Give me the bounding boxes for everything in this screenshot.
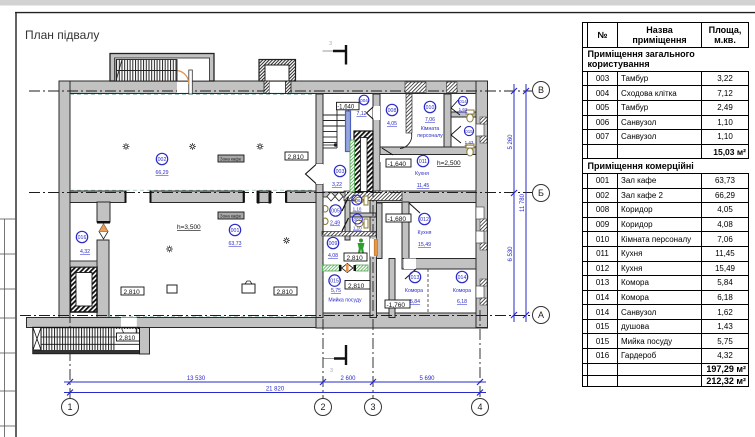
svg-text:001: 001 <box>231 228 240 234</box>
svg-text:-1,680: -1,680 <box>388 216 407 223</box>
svg-text:5,75: 5,75 <box>331 288 341 294</box>
svg-text:2,810: 2,810 <box>119 335 136 342</box>
svg-text:3: 3 <box>330 368 333 374</box>
svg-text:007: 007 <box>354 217 362 222</box>
svg-text:2 600: 2 600 <box>340 376 356 382</box>
svg-text:015: 015 <box>330 279 339 285</box>
svg-text:4,08: 4,08 <box>328 253 338 259</box>
svg-text:002: 002 <box>158 157 167 163</box>
svg-text:013: 013 <box>411 275 420 281</box>
svg-text:5 260: 5 260 <box>508 134 514 150</box>
svg-text:Мийка посуду: Мийка посуду <box>328 297 362 304</box>
svg-text:h=3,500: h=3,500 <box>177 224 201 231</box>
svg-text:006: 006 <box>353 198 361 203</box>
svg-text:2,810: 2,810 <box>288 154 305 161</box>
svg-text:Б: Б <box>538 188 544 198</box>
svg-text:3: 3 <box>329 41 332 47</box>
svg-text:11 780: 11 780 <box>520 193 526 212</box>
svg-text:h=2,500: h=2,500 <box>437 160 461 167</box>
svg-text:В: В <box>538 85 544 95</box>
svg-text:Зона кафе: Зона кафе <box>220 213 242 218</box>
svg-text:А: А <box>538 310 544 320</box>
svg-text:6 530: 6 530 <box>508 246 514 262</box>
svg-text:015: 015 <box>465 129 473 134</box>
svg-text:План підвалу: План підвалу <box>25 28 99 42</box>
svg-text:Зона кафе: Зона кафе <box>220 156 242 161</box>
svg-text:005: 005 <box>331 209 340 215</box>
svg-text:012: 012 <box>420 217 429 223</box>
svg-text:4,05: 4,05 <box>387 121 397 127</box>
svg-text:11,45: 11,45 <box>417 183 430 189</box>
svg-text:2,810: 2,810 <box>124 289 141 296</box>
svg-text:014: 014 <box>458 275 467 281</box>
svg-text:Кухня: Кухня <box>418 230 432 236</box>
svg-text:-1,640: -1,640 <box>388 161 407 168</box>
svg-text:63,73: 63,73 <box>229 241 242 247</box>
svg-text:13 530: 13 530 <box>187 376 206 382</box>
svg-text:2,49: 2,49 <box>330 221 340 227</box>
svg-text:66,29: 66,29 <box>156 170 169 176</box>
svg-text:-1,760: -1,760 <box>387 302 406 309</box>
svg-text:008: 008 <box>388 108 397 114</box>
svg-text:4,32: 4,32 <box>80 249 90 255</box>
svg-text:1: 1 <box>67 402 72 412</box>
svg-text:009: 009 <box>329 241 338 247</box>
svg-text:1,43: 1,43 <box>465 140 474 145</box>
svg-text:7,12: 7,12 <box>356 111 366 117</box>
svg-text:1,10: 1,10 <box>353 207 362 212</box>
svg-text:Комора: Комора <box>453 288 471 294</box>
svg-text:Кімната: Кімната <box>421 126 440 132</box>
svg-text:014: 014 <box>459 99 467 104</box>
svg-text:7,06: 7,06 <box>425 117 435 123</box>
svg-text:15,49: 15,49 <box>418 242 431 248</box>
svg-text:персоналу: персоналу <box>417 133 443 139</box>
svg-text:003: 003 <box>336 169 345 175</box>
svg-text:3: 3 <box>370 402 375 412</box>
svg-text:1,62: 1,62 <box>459 107 468 112</box>
svg-text:-1,640: -1,640 <box>337 105 355 111</box>
svg-text:004: 004 <box>360 98 368 103</box>
svg-text:4: 4 <box>477 402 482 412</box>
svg-text:Комора: Комора <box>405 288 423 294</box>
svg-text:5,84: 5,84 <box>410 299 420 305</box>
svg-text:Кухня: Кухня <box>415 171 429 177</box>
svg-text:2: 2 <box>320 402 325 412</box>
svg-text:6,18: 6,18 <box>457 299 467 305</box>
svg-text:2,810: 2,810 <box>348 283 365 290</box>
svg-text:3,22: 3,22 <box>332 182 342 188</box>
svg-text:2,810: 2,810 <box>277 289 294 296</box>
svg-text:010: 010 <box>426 105 435 111</box>
svg-text:011: 011 <box>419 159 427 165</box>
svg-text:016: 016 <box>78 235 87 241</box>
svg-text:1,10: 1,10 <box>353 226 362 231</box>
svg-text:21 820: 21 820 <box>266 387 285 393</box>
svg-text:2,810: 2,810 <box>347 255 364 262</box>
svg-text:5 690: 5 690 <box>419 376 435 382</box>
